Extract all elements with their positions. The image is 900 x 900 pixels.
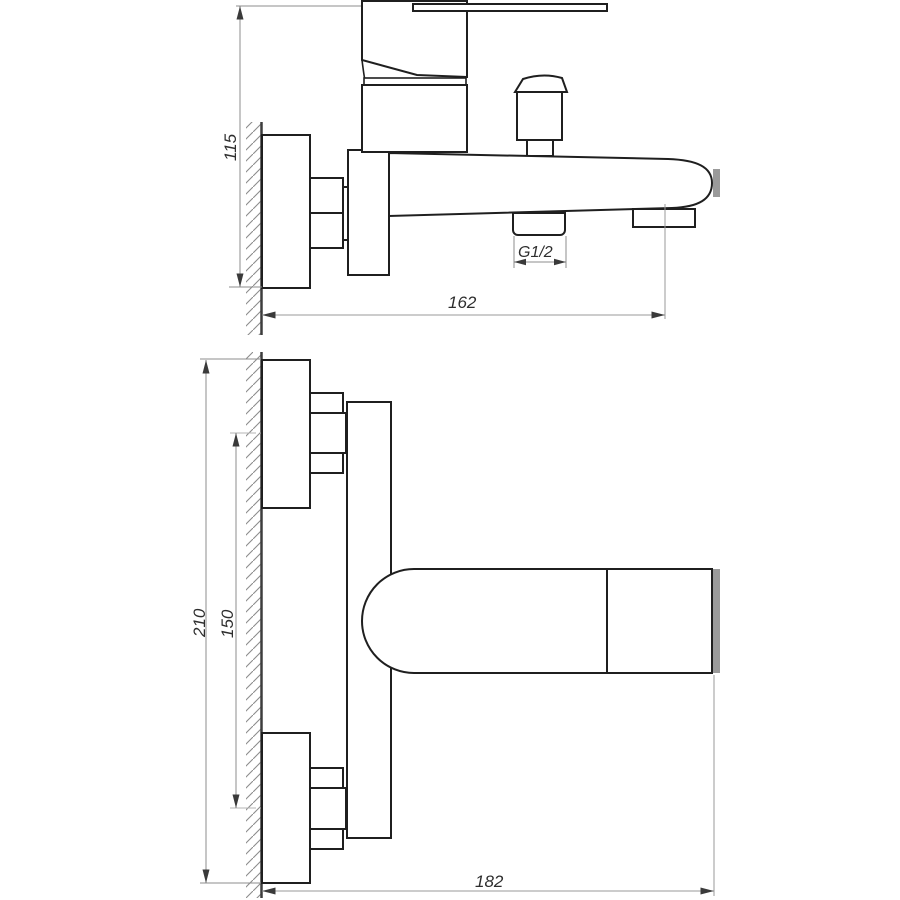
arrow-150-bottom	[233, 795, 240, 809]
diverter-cap	[515, 75, 567, 92]
wall-hatch-plan	[246, 352, 262, 898]
arrow-210-top	[203, 360, 210, 374]
eccentric-step-lower-2	[310, 788, 346, 829]
spout-plan	[362, 569, 712, 673]
label-g12: G1/2	[518, 244, 553, 261]
handle-body	[362, 1, 467, 77]
handle-underside-curve	[362, 60, 365, 78]
plan-view: 210 150 182	[190, 352, 720, 898]
eccentric-step-lower-3	[310, 829, 343, 849]
eccentric-step-upper-2	[310, 413, 346, 453]
handle-lever-bar	[413, 4, 607, 11]
technical-drawing-canvas: 115 G1/2 162	[0, 0, 900, 900]
eccentric-step-upper-1	[310, 393, 343, 413]
spout-outlet-block	[633, 209, 695, 227]
spout-side	[389, 153, 712, 216]
wall-flange-upper	[262, 360, 310, 508]
arrow-115-top	[237, 6, 244, 20]
body-plate-side	[348, 150, 389, 275]
label-115: 115	[221, 133, 240, 161]
wall-flange-side	[262, 135, 310, 288]
diverter-stem	[517, 92, 562, 140]
arrow-150-top	[233, 433, 240, 447]
handle-gasket-ring	[364, 78, 466, 85]
arrow-210-bottom	[203, 870, 210, 884]
label-182: 182	[475, 872, 504, 891]
arrow-g12-right	[554, 259, 566, 265]
cartridge-body	[362, 85, 467, 152]
eccentric-nut-top-side	[310, 178, 343, 213]
arrow-162-right	[652, 312, 666, 319]
spout-tip-gray-side	[713, 169, 720, 197]
faucet-technical-drawing: 115 G1/2 162	[0, 0, 900, 900]
label-150: 150	[218, 609, 237, 638]
eccentric-step-lower-1	[310, 768, 343, 788]
wall-flange-lower	[262, 733, 310, 883]
diverter-neck	[527, 140, 553, 156]
arrow-115-bottom	[237, 274, 244, 288]
shower-connection	[513, 213, 565, 235]
eccentric-nut-bottom-side	[310, 213, 343, 248]
spout-tip-gray-plan	[713, 569, 720, 673]
side-view: 115 G1/2 162	[221, 1, 720, 335]
arrow-182-left	[262, 888, 276, 895]
arrow-162-left	[262, 312, 276, 319]
label-210: 210	[190, 608, 209, 638]
arrow-182-right	[701, 888, 715, 895]
label-162: 162	[448, 293, 477, 312]
eccentric-step-upper-3	[310, 453, 343, 473]
wall-hatch-side	[246, 122, 262, 335]
